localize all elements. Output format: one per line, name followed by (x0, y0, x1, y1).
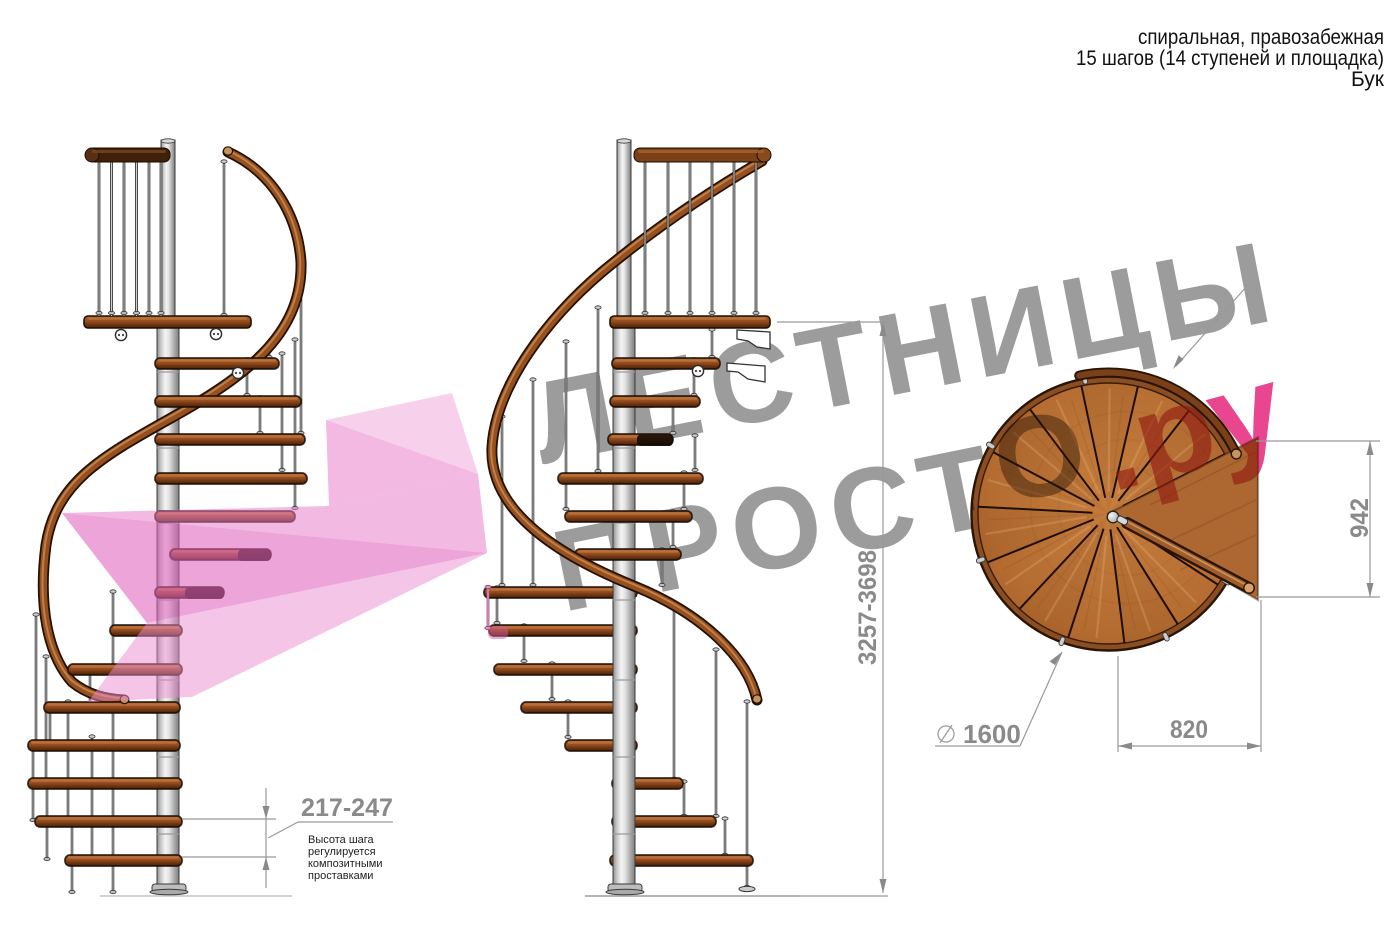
svg-text:композитными: композитными (308, 858, 382, 870)
svg-text:1600: 1600 (963, 719, 1021, 749)
svg-text:820: 820 (1170, 716, 1208, 744)
svg-text:942: 942 (1346, 498, 1374, 538)
svg-text:регулируется: регулируется (308, 846, 376, 858)
svg-text:3257-3698: 3257-3698 (854, 550, 882, 665)
svg-text:Бук: Бук (1351, 68, 1385, 91)
svg-text:15 шагов (14 ступеней и площад: 15 шагов (14 ступеней и площадка) (1076, 47, 1384, 70)
svg-text:Высота шага: Высота шага (308, 834, 375, 846)
svg-text:217-247: 217-247 (301, 794, 393, 822)
svg-text:проставками: проставками (308, 870, 373, 882)
svg-text:спиральная, правозабежная: спиральная, правозабежная (1138, 26, 1384, 49)
